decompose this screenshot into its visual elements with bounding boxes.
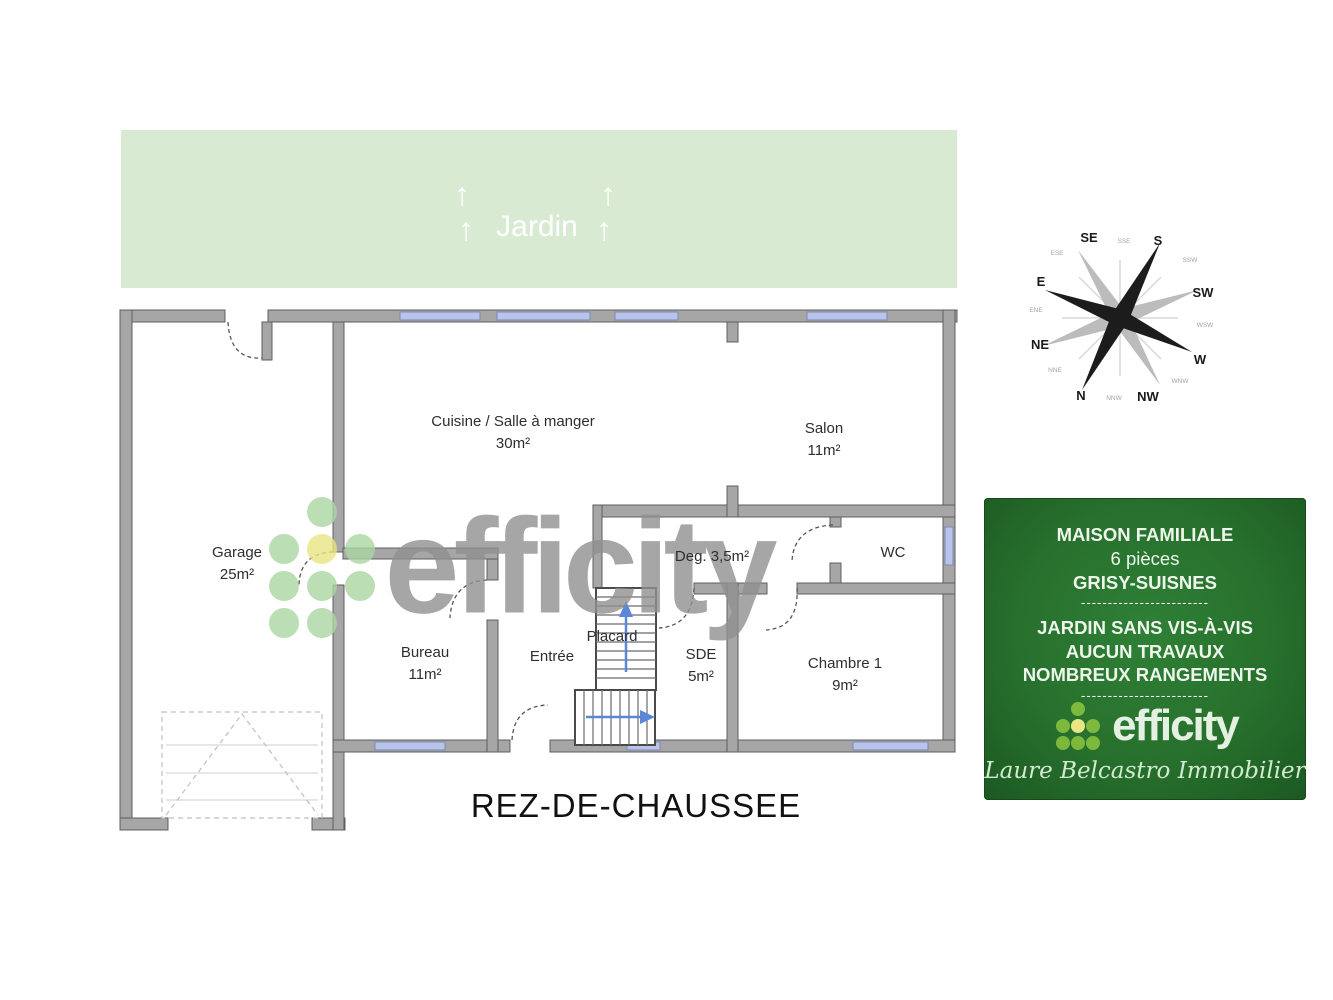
room-name: SDE xyxy=(686,644,717,666)
room-area: 25m² xyxy=(212,564,262,586)
panel-feature-2: AUCUN TRAVAUX xyxy=(984,641,1306,663)
room-label-entree: Entrée xyxy=(530,646,574,668)
panel-feature-1: JARDIN SANS VIS-À-VIS xyxy=(984,617,1306,639)
panel-rooms-count: 6 pièces xyxy=(984,548,1306,570)
compass-label-w: W xyxy=(1194,352,1207,367)
room-area: 5m² xyxy=(686,666,717,688)
panel-feature-3: NOMBREUX RANGEMENTS xyxy=(984,664,1306,686)
compass-rose: S SE E SW NE W N NW NNE ENE ESE SSE SSW … xyxy=(1029,230,1214,404)
agent-name: Laure Belcastro Immobilier xyxy=(984,758,1306,784)
garage-door xyxy=(162,712,322,818)
panel-divider: ------------------------ xyxy=(984,595,1306,610)
compass-label-nw: NW xyxy=(1137,389,1159,404)
room-label-placard: Placard xyxy=(587,626,638,648)
brand-logo-dots xyxy=(1052,700,1104,752)
compass-minor-label: NNE xyxy=(1048,367,1062,374)
room-name: Cuisine / Salle à manger xyxy=(431,411,594,433)
floorplan-page: ↑ ↑ ↑ ↑ Jardin xyxy=(0,0,1333,1000)
room-label-chambre1: Chambre 1 9m² xyxy=(808,653,882,697)
compass-label-s: S xyxy=(1154,233,1163,248)
room-name: Garage xyxy=(212,542,262,564)
compass-label-sw: SW xyxy=(1193,285,1215,300)
floor-title: REZ-DE-CHAUSSEE xyxy=(471,787,801,825)
panel-brand-name: efficity xyxy=(1112,704,1238,748)
compass-minor-label: ENE xyxy=(1029,307,1043,314)
room-name: Bureau xyxy=(401,642,449,664)
room-area: 11m² xyxy=(805,440,843,462)
watermark-logo-dots xyxy=(269,497,375,638)
compass-minor-label: WSW xyxy=(1197,322,1214,329)
room-label-wc: WC xyxy=(881,542,906,564)
info-panel: MAISON FAMILIALE 6 pièces GRISY-SUISNES … xyxy=(984,498,1306,800)
room-label-salon: Salon 11m² xyxy=(805,418,843,462)
compass-minor-label: SSW xyxy=(1183,257,1199,264)
room-label-degagement: Deg. 3,5m² xyxy=(675,546,749,568)
compass-minor-label: WNW xyxy=(1172,378,1190,385)
panel-property-type: MAISON FAMILIALE xyxy=(984,524,1306,546)
room-name: Chambre 1 xyxy=(808,653,882,675)
room-area: 9m² xyxy=(808,675,882,697)
room-label-sde: SDE 5m² xyxy=(686,644,717,688)
room-area: 30m² xyxy=(431,433,594,455)
room-name: Entrée xyxy=(530,646,574,668)
compass-label-ne: NE xyxy=(1031,337,1049,352)
compass-minor-label: SSE xyxy=(1117,238,1131,245)
compass-label-n: N xyxy=(1076,388,1085,403)
compass-label-se: SE xyxy=(1080,230,1098,245)
room-label-cuisine: Cuisine / Salle à manger 30m² xyxy=(431,411,594,455)
room-label-bureau: Bureau 11m² xyxy=(401,642,449,686)
compass-label-e: E xyxy=(1037,274,1046,289)
room-name: Salon xyxy=(805,418,843,440)
room-name: Placard xyxy=(587,626,638,648)
room-name: Deg. 3,5m² xyxy=(675,546,749,568)
compass-minor-label: ESE xyxy=(1050,250,1064,257)
panel-city: GRISY-SUISNES xyxy=(984,572,1306,594)
room-name: WC xyxy=(881,542,906,564)
room-label-garage: Garage 25m² xyxy=(212,542,262,586)
panel-brand-row: efficity xyxy=(984,700,1306,752)
compass-minor-label: NNW xyxy=(1106,395,1122,402)
room-area: 11m² xyxy=(401,664,449,686)
